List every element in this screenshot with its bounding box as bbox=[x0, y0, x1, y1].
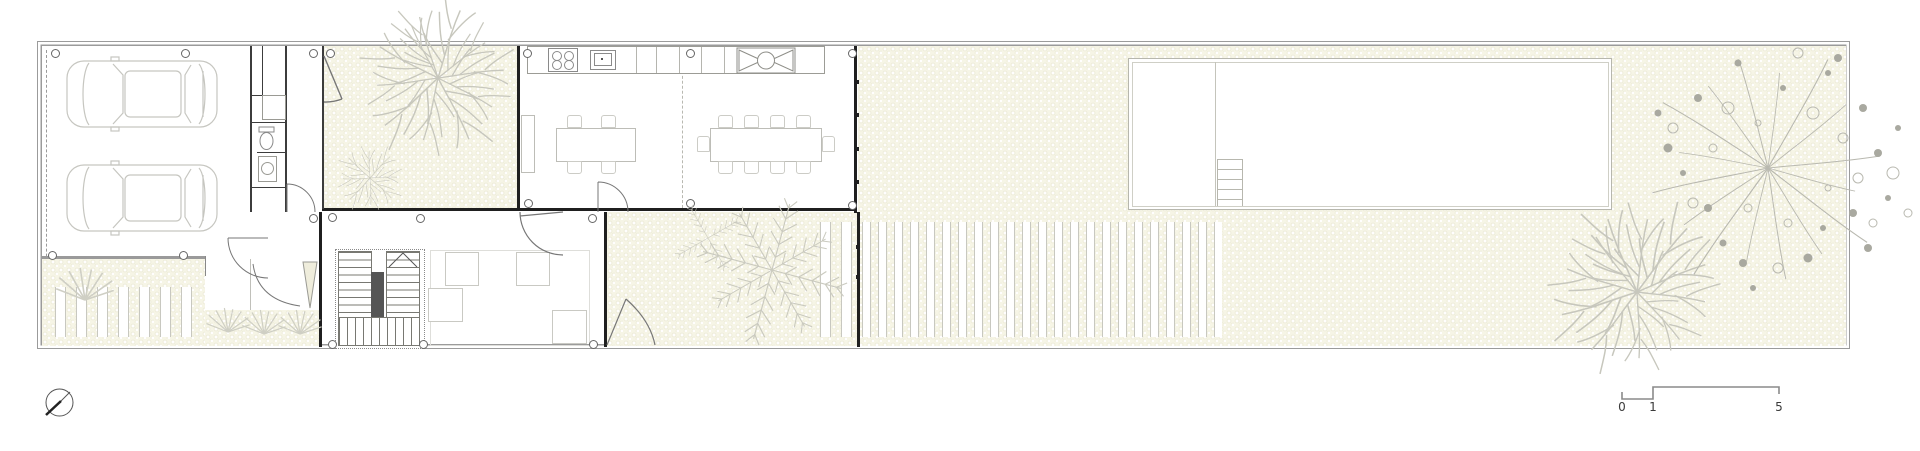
column-marker bbox=[588, 214, 597, 223]
deck-strips-rear bbox=[862, 222, 1222, 337]
burner-icon bbox=[552, 60, 562, 70]
frame-tick bbox=[855, 147, 859, 151]
scale-label-0: 0 bbox=[1615, 400, 1629, 414]
stair-spine-wall bbox=[371, 272, 384, 317]
bench-divider bbox=[724, 47, 725, 73]
chair bbox=[822, 136, 835, 152]
chair bbox=[796, 115, 811, 128]
column-marker bbox=[179, 251, 188, 260]
courtyard-1-paving bbox=[323, 46, 518, 209]
porch-edge bbox=[250, 259, 251, 310]
stair-flight-left bbox=[338, 251, 372, 319]
scale-label-5: 5 bbox=[1772, 400, 1786, 414]
column-marker bbox=[326, 49, 335, 58]
wall-wc-h2 bbox=[250, 122, 285, 123]
front-garden-paving-2 bbox=[205, 310, 322, 346]
chair bbox=[567, 161, 582, 174]
paver-strips-front bbox=[55, 287, 202, 337]
pool-ladder-icon bbox=[1217, 159, 1243, 206]
chair bbox=[744, 115, 759, 128]
pool-divider bbox=[1215, 62, 1216, 206]
sofa-cushion bbox=[445, 252, 479, 286]
burner-icon bbox=[564, 60, 574, 70]
frame-tick bbox=[856, 275, 860, 279]
chair bbox=[601, 115, 616, 128]
column-marker bbox=[48, 251, 57, 260]
bench-divider bbox=[636, 47, 637, 73]
wall-wc-right bbox=[285, 46, 287, 212]
chair bbox=[567, 115, 582, 128]
basin bbox=[258, 156, 277, 182]
chair bbox=[796, 161, 811, 174]
wall-dining-right bbox=[854, 46, 857, 213]
column-marker bbox=[524, 199, 533, 208]
entry-side-wall bbox=[205, 256, 206, 276]
sink-icon bbox=[590, 50, 616, 70]
wall-mid-horizontal bbox=[322, 208, 857, 211]
column-marker bbox=[309, 214, 318, 223]
chair bbox=[744, 161, 759, 174]
column-marker bbox=[419, 340, 428, 349]
column-marker bbox=[328, 213, 337, 222]
kitchen-cabinet bbox=[521, 115, 535, 173]
wall-wc-h3 bbox=[257, 152, 285, 153]
scale-label-1: 1 bbox=[1646, 400, 1660, 414]
bench-divider bbox=[656, 47, 657, 73]
chair bbox=[601, 161, 616, 174]
frame-tick bbox=[855, 180, 859, 184]
chair bbox=[718, 161, 733, 174]
sink-bowl bbox=[594, 53, 612, 66]
scale-bar bbox=[1622, 387, 1779, 399]
bench-divider bbox=[679, 47, 680, 73]
wall-hall-right bbox=[322, 46, 324, 209]
column-marker bbox=[523, 49, 532, 58]
sofa-cushion bbox=[516, 252, 550, 286]
stove-icon bbox=[548, 48, 578, 72]
sofa-cushion bbox=[428, 288, 463, 322]
column-marker bbox=[416, 214, 425, 223]
column-marker bbox=[309, 49, 318, 58]
island-bench bbox=[556, 128, 636, 162]
column-marker bbox=[686, 49, 695, 58]
column-marker bbox=[686, 199, 695, 208]
laundry-cabinet bbox=[262, 95, 286, 120]
bench-divider bbox=[701, 47, 702, 73]
column-marker bbox=[848, 49, 857, 58]
north-arrow-icon bbox=[46, 389, 73, 416]
wall-wc-inner bbox=[262, 46, 263, 95]
column-marker bbox=[51, 49, 60, 58]
pool-coping bbox=[1132, 62, 1609, 207]
frame-tick bbox=[855, 80, 859, 84]
chair bbox=[697, 136, 710, 152]
wall-living-right bbox=[604, 212, 607, 347]
column-marker bbox=[589, 340, 598, 349]
chair bbox=[718, 115, 733, 128]
frame-tick bbox=[856, 245, 860, 249]
wall-kitchen-left bbox=[517, 46, 520, 210]
wall-garden bbox=[857, 212, 860, 347]
chair bbox=[770, 115, 785, 128]
sink-drain bbox=[601, 58, 603, 60]
wall-wc-h4 bbox=[250, 187, 285, 188]
dining-table bbox=[710, 128, 822, 162]
column-marker bbox=[181, 49, 190, 58]
paver-strips-courtyard2 bbox=[820, 222, 857, 337]
stair-winders bbox=[338, 317, 420, 346]
column-marker bbox=[328, 340, 337, 349]
wall-living-left bbox=[319, 212, 322, 347]
swimming-pool bbox=[1128, 58, 1612, 210]
chair bbox=[770, 161, 785, 174]
basin-bowl bbox=[261, 162, 274, 175]
sofa-cushion bbox=[552, 310, 587, 344]
floor-plan-canvas: 0 1 5 bbox=[0, 0, 1920, 451]
stair-flight-right bbox=[386, 251, 420, 319]
frame-tick bbox=[855, 113, 859, 117]
column-marker bbox=[848, 201, 857, 210]
